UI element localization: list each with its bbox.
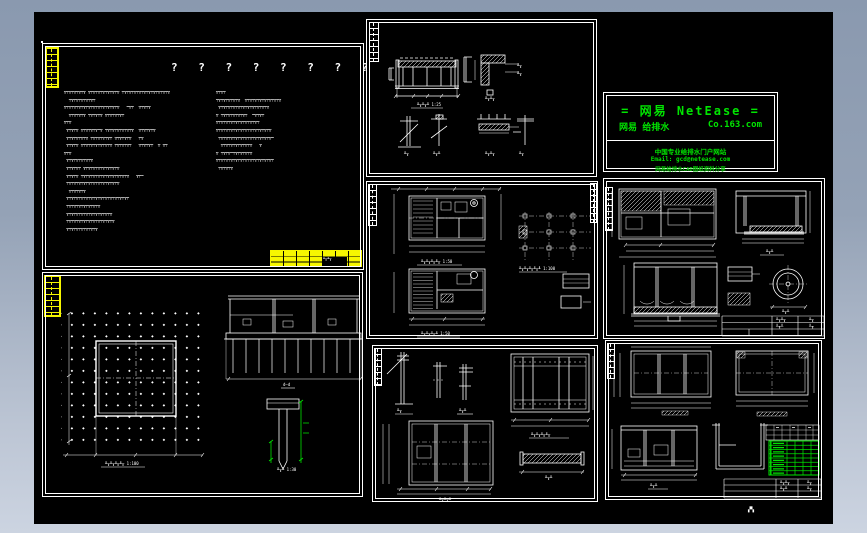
note-line: ╦ ╤╦╤╦═╤╦╤╦╤╦╤╦ xyxy=(216,149,361,157)
svg-text:╨╥╨: ╨╥╨ xyxy=(544,475,553,480)
note-line: ╦╤╦╤╦╤ ╦╤╦╤╦╤╦╤╦╤╦╤╦╤╦ xyxy=(64,164,199,172)
note-line: ╦╤╦╤╦ ╤╦╤╦╤╦╤╦╤╦╤╦╤╦╤╦╤╦╤╦ ╦╤═ xyxy=(64,172,199,180)
note-line: ╦╤╦╤╦╤╦╤╦╤╦╤╦ xyxy=(64,225,199,233)
note-line: ╦╤╦╤╦╤╦╤╦ ╦╤╦╤╦╤╦╤╦╤╦╤╦ ╤╦╤╦╤╦╤╦╤╦╤╦╤╦╤╦… xyxy=(64,88,199,96)
note-line: ╦╤╦╤╦ ╦╤╦╤╦╤╦═╦ ╤╦╤╦╤╦╤╦╤╦╤╦ ╦╤╦╤╦╤╦ xyxy=(64,126,199,134)
cad-viewer-window: ? ? ? ? ? ? ? ? ╦╤╦╤╦╤╦╤╦ ╦╤╦╤╦╤╦╤╦╤╦╤╦ … xyxy=(0,0,867,533)
svg-text:╨╥: ╨╥ xyxy=(516,63,522,68)
netease-tagline: 中国专业给排水门户网站 xyxy=(607,146,774,156)
note-line: ╦╤╦ xyxy=(64,149,199,157)
note-line: ╦╤╦╤╦╤╦╤╦╤╦╤╦╤╦╤╦╤╦╤╦╤╦ ═╦╤ ╦╤╦╤╦ xyxy=(64,103,199,111)
svg-text:╨╥╨╥╨╥╨╥ 1:50: ╨╥╨╥╨╥╨╥ 1:50 xyxy=(420,259,453,264)
revision-strip-highlighted[interactable] xyxy=(45,47,59,88)
divider xyxy=(607,140,774,141)
svg-text:╨╥: ╨╥ xyxy=(808,317,814,322)
panel-structure-sheet[interactable]: ╨╥╨ ╨╥╨╥ ╨╥ ╨╥╨ ╨╥ xyxy=(605,340,822,500)
svg-text:╨╥╨╥╨ 1:25: ╨╥╨╥╨ 1:25 xyxy=(416,102,442,107)
note-line: ╦╤╦╤╦ ╦╤╦╤╦╤╦╤╦╤╦╤╦ ╤╦╤╦╤╦╤ ╦╤╦╤╦╤ ╦ ╦╤ xyxy=(64,141,199,149)
structure-drawings: ╨╥╨ ╨╥╨╥ ╨╥ ╨╥╨ ╨╥ xyxy=(606,341,823,501)
svg-text:╨╥╨╥╨╥╨╥: ╨╥╨╥╨╥╨╥ xyxy=(530,432,551,437)
plan-drawings: ╨╥╨╥╨╥╨╥ 1:50 ╨╥╨╥╨╥╨ 1:50 ╨╥╨╥╨╥╨╥╨ 1:1… xyxy=(367,182,599,340)
svg-text:╨╥: ╨╥ xyxy=(396,408,402,413)
detail-drawings: ╨╥╨╥╨ 1:25 ╨╥ ╨╥ ╨╥╨╥ ╨╥ ╨╥╨ ╨╥╨╥ ╨╥ xyxy=(367,20,598,178)
svg-text:╨╥╨: ╨╥╨ xyxy=(765,249,774,254)
svg-text:╨╥╨╥: ╨╥╨╥ xyxy=(484,151,495,156)
note-line: ╤╦╤╦╤╦╤╦╤╦╤╦╤╦╤╦╤╦╤╦╤╦═ xyxy=(216,134,361,142)
note-line: ╦╤╦╤╦╤╦ xyxy=(64,187,199,195)
svg-text:╨╥╨ 1:30: ╨╥╨ 1:30 xyxy=(276,467,297,472)
note-line: ╦╤╦╤╦╤╦╤╦ ╤╦╤╦╤╦╤╦╤ ╦╤╦╤╦╤╦ ╤╦ xyxy=(64,134,199,142)
notes-left-column: ╦╤╦╤╦╤╦╤╦ ╦╤╦╤╦╤╦╤╦╤╦╤╦ ╤╦╤╦╤╦╤╦╤╦╤╦╤╦╤╦… xyxy=(64,88,199,232)
notes-title: ? ? ? ? ? ? ? ? xyxy=(171,61,375,74)
svg-text:╨╥╨╥╨: ╨╥╨╥╨ xyxy=(438,497,452,502)
note-line: ╤╦╤╦╤╦╤╦╤╦╤╦╤╦╤╦╤╦╤╦╤╦ xyxy=(64,179,199,187)
svg-text:╨╥: ╨╥ xyxy=(518,151,524,156)
drawing-canvas[interactable]: ? ? ? ? ? ? ? ? ╦╤╦╤╦╤╦╤╦ ╦╤╦╤╦╤╦╤╦╤╦╤╦ … xyxy=(34,12,833,524)
netease-title: = 网易 NetEase = xyxy=(607,102,774,119)
svg-text:╨╥: ╨╥ xyxy=(808,324,814,329)
netease-sub-right: Co.163.com xyxy=(708,120,762,133)
note-line: ╤╦╤╦╤╦╤╦╤╦╤╦╤╦╤╦╤╦╤╦ xyxy=(64,217,199,225)
note-line: ╤╦╤╦╤╦╤╦╤╦╤╦╤╦ xyxy=(64,202,199,210)
svg-text:╨╥╨: ╨╥╨ xyxy=(775,324,784,329)
svg-text:╨╥: ╨╥ xyxy=(806,486,812,491)
note-line: ╦╤╦╤╦╤╦╤╦╤╦╤╦╤╦╤╦╤╦╤╦╤╦╤ xyxy=(216,156,361,164)
svg-text:╨╥╨: ╨╥╨ xyxy=(649,483,658,488)
page-label: ▞▚ xyxy=(748,507,754,513)
title-block-dark-cell: ╨╥╨╥ xyxy=(323,257,347,266)
netease-footer: 网易给排水CAD图纸资料分享 xyxy=(607,165,774,173)
svg-text:d–d: d–d xyxy=(283,382,291,387)
svg-text:╨╥╨╥: ╨╥╨╥ xyxy=(484,96,495,101)
panel-detail-sheet[interactable]: ╨╥╨╥╨ 1:25 ╨╥ ╨╥ ╨╥╨╥ ╨╥ ╨╥╨ ╨╥╨╥ ╨╥ xyxy=(366,19,597,177)
tank-drawings: ╨╥╨ ╨╥╨ ╨╥╨╥ ╨╥ ╨╥╨ ╨╥ xyxy=(604,179,826,340)
rebar-drawings: ╨╥ ╨╥╨ ╨╥╨╥╨╥╨╥ ╨╥╨ ╨╥╨╥╨ xyxy=(373,346,599,503)
pile-drawings: ╨╥╨╥╨╥╨╥ 1:100 d–d ╨╥╨ 1:30 xyxy=(43,273,364,498)
svg-text:╨╥╨: ╨╥╨ xyxy=(458,408,467,413)
note-line: ╦╤╦╤╦╤╦╤╦╤╦╤╦╤╦╤╦╤╦╤╦╤╦╤╦╤ xyxy=(64,194,199,202)
note-line: ╤╦╤╦╤╦╤╦╤╦╤ xyxy=(64,96,199,104)
netease-watermark: = 网易 NetEase = 网易 给排水 Co.163.com 中国专业给排水… xyxy=(603,92,778,172)
note-line: ╦╤╦ xyxy=(64,118,199,126)
note-line: ╤╦╤╦╤╦╤╦╤╦ ╦╤╦╤╦╤╦╤╦╤╦╤╦╤╦ xyxy=(216,96,361,104)
svg-text:╨╥: ╨╥ xyxy=(403,151,409,156)
note-line: ╦╤╦╤╦╤╦╤╦╤╦╤╦╤╦╤╦╤ xyxy=(216,118,361,126)
svg-text:╨╥: ╨╥ xyxy=(806,480,812,485)
panel-pile-sheet[interactable]: ╨╥╨╥╨╥╨╥ 1:100 d–d ╨╥╨ 1:30 xyxy=(42,272,363,497)
svg-text:╨╥╨╥: ╨╥╨╥ xyxy=(779,480,790,485)
panel-rebar-sheet[interactable]: ╨╥ ╨╥╨ ╨╥╨╥╨╥╨╥ ╨╥╨ ╨╥╨╥╨ xyxy=(372,345,598,502)
note-line: ╦╤╦╤╦╤╦╤╦╤╦╤╦╤╦╤╦╤╦ xyxy=(64,210,199,218)
note-line: ╦╤╦╤╦╤╦╤╦╤╦╤╦ ╦ xyxy=(216,141,361,149)
note-line: ╦╤╦╤ xyxy=(216,88,361,96)
panel-plan-sheet[interactable]: ╨╥╨╥╨╥╨╥ 1:50 ╨╥╨╥╨╥╨ 1:50 ╨╥╨╥╨╥╨╥╨ 1:1… xyxy=(366,181,598,339)
svg-text:╨╥╨: ╨╥╨ xyxy=(779,486,788,491)
note-line: ╦ ╤╦╤╦╤╦╤╦╤╦╤ ═╦╤╦╤ xyxy=(216,111,361,119)
note-line: ╤╦╤╦╤╦ xyxy=(216,164,361,172)
svg-text:╨╥╨╥╨╥╨╥╨ 1:100: ╨╥╨╥╨╥╨╥╨ 1:100 xyxy=(518,266,556,271)
svg-text:╨╥╨╥╨╥╨╥ 1:100: ╨╥╨╥╨╥╨╥ 1:100 xyxy=(104,461,139,466)
note-line: ╦╤╦╤╦╤╦ ╤╦╤╦╤╦ ╦╤╦╤╦╤╦╤ xyxy=(64,111,199,119)
panel-notes[interactable]: ? ? ? ? ? ? ? ? ╦╤╦╤╦╤╦╤╦ ╦╤╦╤╦╤╦╤╦╤╦╤╦ … xyxy=(42,43,364,270)
note-line: ╦╤╦╤╦╤╦╤╦╤╦ xyxy=(64,156,199,164)
svg-text:╨╥╨: ╨╥╨ xyxy=(781,309,790,314)
notes-right-column: ╦╤╦╤╤╦╤╦╤╦╤╦╤╦ ╦╤╦╤╦╤╦╤╦╤╦╤╦╤╦ ╦╤╦╤╦╤╦╤╦… xyxy=(216,88,361,172)
netease-email: Email: gcd@netease.com xyxy=(607,156,774,163)
svg-text:╨╥╨: ╨╥╨ xyxy=(432,151,441,156)
panel-tank-sheet[interactable]: ╨╥╨ ╨╥╨ ╨╥╨╥ ╨╥ ╨╥╨ ╨╥ xyxy=(603,178,825,339)
svg-text:╨╥╨╥╨╥╨ 1:50: ╨╥╨╥╨╥╨ 1:50 xyxy=(420,331,450,336)
note-line: ╦╤╦╤╦╤╦╤╦╤╦╤╦╤╦╤╦╤╦╤╦ xyxy=(216,103,361,111)
title-block-highlighted[interactable]: ╨╥╨╥ xyxy=(270,250,362,267)
rebar-schedule-table xyxy=(769,441,819,475)
svg-text:╨╥: ╨╥ xyxy=(516,71,522,76)
svg-text:╨╥╨╥: ╨╥╨╥ xyxy=(775,317,786,322)
netease-sub-left: 网易 给排水 xyxy=(619,120,669,133)
note-line: ╦╤╦╤╦╤╦╤╦╤╦╤╦╤╦╤╦╤╦╤╦╤╦ xyxy=(216,126,361,134)
